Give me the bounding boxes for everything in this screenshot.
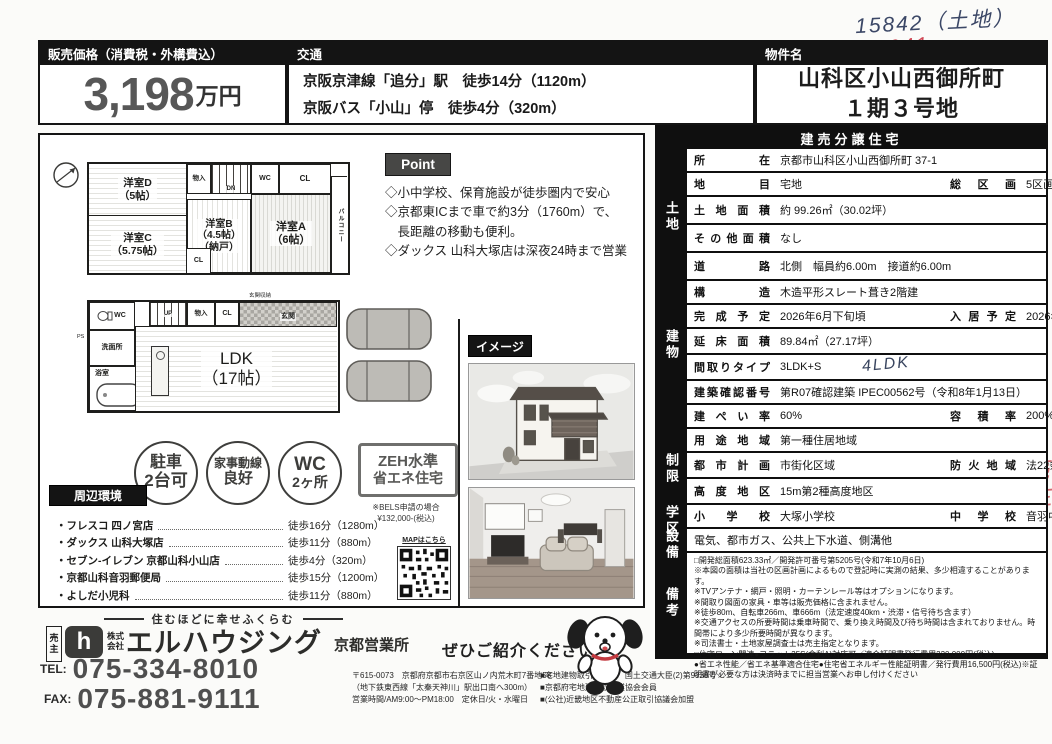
- entrance-storage-label: 玄関収納: [249, 291, 271, 299]
- dotted-leader: [158, 529, 283, 530]
- surroundings-item: ・京都山科音羽郵便局徒歩15分（1200m）: [56, 568, 392, 586]
- stairs-2f: DN: [211, 164, 251, 194]
- closet-cl-1f: CL: [215, 302, 239, 326]
- floorplan-1f: 玄関収納 WC 洗面所 PS 浴室 UP 物入 CL 玄関 LDK （17帖）: [87, 300, 340, 413]
- group-label-restriction: 制限: [662, 453, 681, 485]
- spec-row-zoning: 用途地域第一種住居地域: [687, 429, 1046, 451]
- point-item-3: ◇ダックス 山科大塚店は深夜24時まで営業: [385, 242, 641, 261]
- price-value-box: 3,198 万円: [40, 65, 285, 123]
- transport-line-1: 京阪京津線「追分」駅 徒歩14分（1120m）: [303, 69, 753, 96]
- dotted-leader: [225, 564, 283, 565]
- closet-1f: 物入: [187, 302, 215, 326]
- dotted-leader: [169, 546, 283, 547]
- floorplan-panel: 洋室D （5帖） 洋室C （5.75帖） 物入 DN WC CL 洋室B （4.…: [38, 133, 645, 608]
- real-estate-flyer: 15842（土地） 16041 売主 販売価格（消費税・外構費込） 3,198 …: [0, 0, 1052, 744]
- dog-mascot: [565, 612, 645, 702]
- closet-cl-top: CL: [279, 164, 331, 194]
- spec-row-land-area: 土地面積約 99.26㎡（30.02坪）: [687, 197, 1046, 223]
- spec-row-coverage: 建ぺい率60%容積率200%: [687, 405, 1046, 427]
- transport-section-header: 交通: [289, 42, 753, 65]
- address-line: 営業時間/AM9:00〜PM18:00 定休日/火・水曜日: [352, 694, 551, 706]
- address-line: 〒615-0073 京都府京都市右京区山ノ内荒木町7番地58: [352, 670, 551, 682]
- spec-row-building-permit: 建築確認番号第R07確認建築 IPEC00562号（令和8年1月13日）: [687, 381, 1046, 403]
- price-value: 3,198: [83, 71, 193, 117]
- group-label-remarks: 備考: [662, 587, 681, 619]
- wc-1f: WC: [89, 302, 135, 330]
- spec-row-equipment: 電気、都市ガス、公共上下水道、側溝他: [687, 529, 1046, 551]
- room-d: 洋室D （5帖）: [89, 164, 187, 216]
- handwritten-layout: 4LDK: [861, 354, 910, 376]
- point-header: Point: [385, 153, 451, 176]
- surroundings-header: 周辺環境: [49, 485, 147, 506]
- dotted-leader: [135, 599, 284, 600]
- price-unit: 万円: [196, 77, 242, 111]
- balcony: バルコニー: [331, 176, 347, 273]
- group-label-building: 建物: [662, 329, 681, 361]
- room-c: 洋室C （5.75帖）: [89, 216, 187, 273]
- price-section: 販売価格（消費税・外構費込） 3,198 万円: [38, 40, 287, 125]
- spec-row-floor-area: 延床面積89.84㎡（27.17坪）: [687, 329, 1046, 353]
- property-name-line2: １期３号地: [844, 94, 959, 124]
- floorplan-2f: 洋室D （5帖） 洋室C （5.75帖） 物入 DN WC CL 洋室B （4.…: [87, 162, 350, 275]
- spec-row-remarks: □開発総面積623.33㎡／開発許可番号第5205号(令和7年10月6日) ※本…: [687, 553, 1046, 653]
- spec-row-completion: 完成予定2026年6月下旬頃入居予定2026年7月上旬頃: [687, 305, 1046, 327]
- company-branch: 京都営業所: [334, 634, 409, 655]
- surroundings-list: ・フレスコ 四ノ宮店徒歩16分（1280m） ・ダックス 山科大塚店徒歩11分（…: [56, 515, 392, 603]
- spec-table-title: 建売分譲住宅: [657, 127, 1046, 149]
- handwritten-lot-number: 15842（土地）: [854, 2, 1016, 40]
- room-a: 洋室A （6帖）: [251, 194, 331, 273]
- spec-row-road: 道路北側 幅員約6.00m 接道約6.00m: [687, 253, 1046, 279]
- parked-cars: [343, 305, 435, 409]
- washroom: 洗面所: [89, 330, 135, 366]
- map-qr-code: [397, 546, 451, 600]
- surroundings-item: ・フレスコ 四ノ宮店徒歩16分（1280m）: [56, 515, 392, 533]
- spec-row-other-area: その他面積なし: [687, 225, 1046, 251]
- spec-row-layout-type: 間取りタイプ3LDK+S4LDK: [687, 355, 1046, 379]
- point-item-1: ◇小中学校、保育施設が徒歩圏内で安心: [385, 184, 641, 203]
- property-name-section: 物件名 山科区小山西御所町 １期３号地: [755, 40, 1048, 125]
- toilet-icon: [97, 310, 113, 322]
- sink-icon: [156, 351, 165, 360]
- spec-row-structure: 構造木造平形スレート葺き2階建: [687, 281, 1046, 303]
- wc-2f: WC: [251, 164, 279, 194]
- surroundings-item: ・セブン-イレブン 京都山科小山店徒歩4分（320m）: [56, 550, 392, 568]
- spec-row-school-district: 小学校大塚小学校中学校音羽中学校: [687, 505, 1046, 527]
- dotted-leader: [166, 581, 283, 582]
- kitchen-counter: [151, 346, 169, 396]
- price-section-header: 販売価格（消費税・外構費込）: [40, 42, 285, 65]
- tel-number: 075-334-8010: [73, 655, 259, 683]
- surroundings-item: ・ダックス 山科大塚店徒歩11分（880m）: [56, 533, 392, 551]
- zeh-badge: ZEH水準 省エネ住宅: [358, 443, 458, 497]
- map-qr-label: MAPはこちら: [395, 535, 453, 545]
- surroundings-item: ・よしだ小児科徒歩11分（880m）: [56, 585, 392, 603]
- image-column-divider: [458, 319, 460, 606]
- map-qr-block: MAPはこちら: [395, 535, 453, 605]
- property-name-header: 物件名: [757, 42, 1046, 65]
- spec-row-location: 所在京都市山科区小山西御所町 37-1: [687, 149, 1046, 171]
- transport-line-2: 京阪バス「小山」停 徒歩4分（320m）: [303, 96, 753, 123]
- property-name-line1: 山科区小山西御所町: [798, 64, 1005, 94]
- point-item-2: ◇京都東ICまで車で約3分（1760m）で、 長距離の移動も便利。: [385, 203, 641, 242]
- address-line: （地下鉄東西線「太秦天神川」駅出口南へ300m）: [352, 682, 551, 694]
- group-label-equipment: 設備: [662, 529, 681, 561]
- company-prefix: 株式 会社: [107, 631, 124, 651]
- fax-row: FAX: 075-881-9111: [44, 685, 261, 713]
- image-section-header: イメージ: [468, 335, 532, 357]
- ps-label: PS: [77, 334, 84, 340]
- office-address-block: 〒615-0073 京都府京都市右京区山ノ内荒木町7番地58 （地下鉄東西線「太…: [352, 670, 551, 706]
- spec-row-height-district: 高度地区15m第2種高度地区: [687, 479, 1046, 503]
- tagline-divider: [104, 618, 144, 620]
- badge-wc: WC 2ヶ所: [278, 441, 342, 505]
- tel-row: TEL: 075-334-8010: [40, 655, 259, 683]
- closet-2f: 物入: [187, 164, 211, 194]
- exterior-photo: [468, 363, 635, 480]
- tagline-divider: [303, 618, 343, 620]
- spec-row-land-category: 地目宅地総区画5区画: [687, 173, 1046, 195]
- spec-row-city-planning: 都市計画市街化区域防火地域法22条区域: [687, 453, 1046, 477]
- closet-cl-mid: CL: [187, 248, 211, 273]
- stairs-1f: UP: [149, 302, 187, 326]
- group-label-land: 土地: [662, 201, 681, 233]
- transport-section: 交通 京阪京津線「追分」駅 徒歩14分（1120m） 京阪バス「小山」停 徒歩4…: [287, 40, 755, 125]
- badge-housework-flow: 家事動線 良好: [206, 441, 270, 505]
- point-section: Point ◇小中学校、保育施設が徒歩圏内で安心 ◇京都東ICまで車で約3分（1…: [385, 153, 641, 293]
- fax-number: 075-881-9111: [77, 685, 260, 713]
- spec-table: 建売分譲住宅 土地 建物 制限 学区 設備 備考 所在京都市山科区小山西御所町 …: [655, 125, 1048, 659]
- interior-photo: [468, 487, 635, 599]
- compass-icon: [52, 161, 80, 189]
